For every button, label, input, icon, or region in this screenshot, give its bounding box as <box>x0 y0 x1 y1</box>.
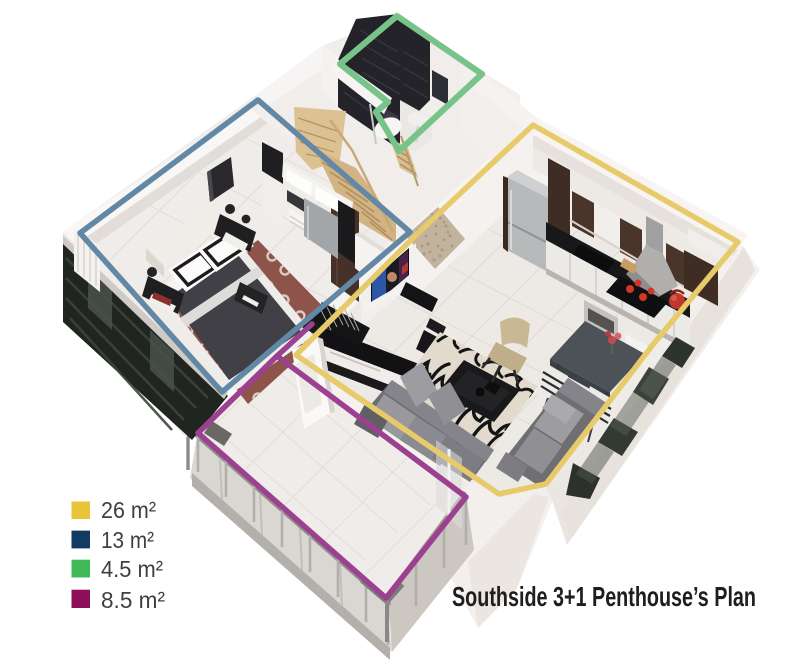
svg-text:4.5 m²: 4.5 m² <box>101 556 163 582</box>
svg-text:13 m²: 13 m² <box>101 527 154 553</box>
svg-text:8.5 m²: 8.5 m² <box>101 587 165 613</box>
svg-text:Southside 3+1 Penthouse’s Plan: Southside 3+1 Penthouse’s Plan <box>452 581 756 612</box>
svg-text:26 m²: 26 m² <box>101 497 156 523</box>
